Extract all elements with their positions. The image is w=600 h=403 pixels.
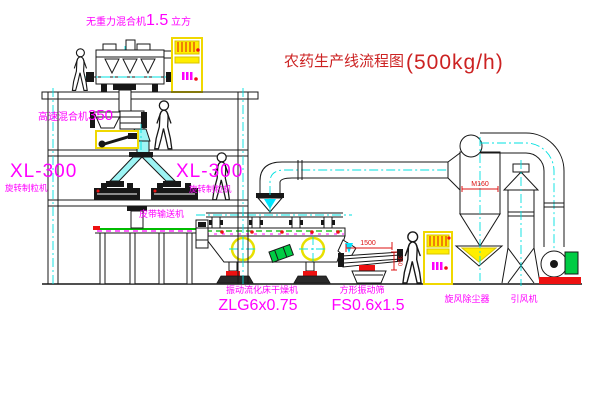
granulator-right-model: XL-300 xyxy=(176,161,243,182)
cad-drawing-canvas: 农药生产线流程图 (500kg/h) 无重力混合机1.5 立方 高速混合机350… xyxy=(0,0,600,403)
fan-label: 引风机 xyxy=(510,293,537,304)
sieve-width-dim: 1500 xyxy=(360,240,376,247)
person-figure xyxy=(403,232,421,283)
high-speed-mixer-label: 高速混合机350 xyxy=(38,107,113,124)
exhaust-stack xyxy=(502,160,540,286)
diagram-title-capacity: (500kg/h) xyxy=(406,51,504,74)
fluid-bed-dryer xyxy=(196,213,356,283)
sieve-name: 方形振动筛 xyxy=(339,284,384,295)
person-figure xyxy=(155,101,172,149)
gravity-mixer-label: 无重力混合机1.5 立方 xyxy=(86,12,191,29)
person-figure xyxy=(72,49,87,91)
cyclone-separator xyxy=(448,135,502,281)
process-flow-diagram: 农药生产线流程图 (500kg/h) 无重力混合机1.5 立方 高速混合机350… xyxy=(0,0,600,403)
dryer-name: 振动流化床干燥机 xyxy=(226,284,298,295)
sieve-model: FS0.6x1.5 xyxy=(332,297,405,314)
cyclone-label: 旋风除尘器 xyxy=(444,293,489,304)
cyclone-dim: M160 xyxy=(471,181,489,188)
granulator-left-model: XL-300 xyxy=(10,161,77,182)
control-cabinet-1 xyxy=(170,38,204,92)
exhaust-duct xyxy=(256,160,455,212)
induced-draft-fan xyxy=(539,251,581,284)
control-cabinet-2 xyxy=(424,232,452,284)
sieve-height-dim: 350 xyxy=(396,256,402,267)
belt-conveyor-label: 皮带输送机 xyxy=(139,208,184,219)
granulator-right-name: 旋转制粒机 xyxy=(189,184,232,194)
dryer-spring-ports xyxy=(209,217,335,228)
granulator-left-name: 旋转制粒机 xyxy=(5,183,48,193)
square-sieve xyxy=(338,242,403,283)
dryer-model: ZLG6x0.75 xyxy=(218,297,297,314)
belt-conveyor xyxy=(93,226,206,284)
diagram-title: 农药生产线流程图 xyxy=(284,53,404,70)
